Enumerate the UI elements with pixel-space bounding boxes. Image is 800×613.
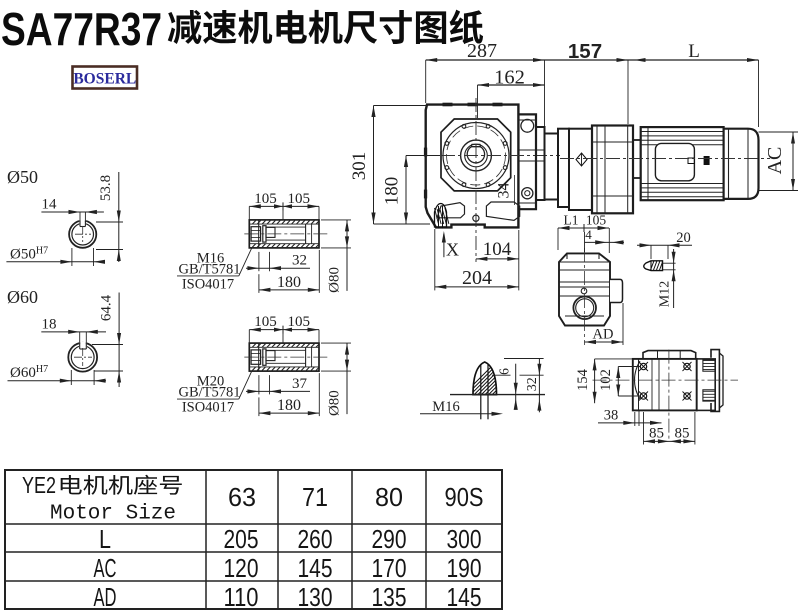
svg-text:14: 14	[42, 197, 58, 213]
svg-text:X: X	[446, 240, 459, 260]
svg-text:GB/T5781: GB/T5781	[178, 385, 240, 401]
svg-text:BOSERL: BOSERL	[73, 71, 136, 88]
svg-text:162: 162	[494, 67, 525, 89]
svg-text:Ø80: Ø80	[327, 390, 343, 416]
svg-text:32: 32	[525, 377, 540, 391]
svg-text:301: 301	[349, 152, 370, 181]
svg-text:L: L	[99, 524, 111, 554]
svg-text:ISO4017: ISO4017	[182, 276, 234, 292]
svg-text:80: 80	[375, 482, 403, 512]
svg-text:290: 290	[372, 524, 407, 554]
svg-text:157: 157	[568, 40, 602, 63]
svg-text:190: 190	[447, 553, 482, 583]
svg-text:105: 105	[288, 314, 311, 330]
svg-text:M16: M16	[432, 399, 459, 415]
svg-text:205: 205	[224, 524, 259, 554]
svg-text:M12: M12	[658, 281, 673, 307]
svg-text:SA77R37: SA77R37	[1, 3, 162, 55]
svg-text:90S: 90S	[445, 482, 484, 512]
svg-text:AC: AC	[764, 147, 786, 175]
svg-text:71: 71	[302, 482, 328, 512]
svg-text:ISO4017: ISO4017	[182, 400, 234, 416]
svg-text:GB/T5781: GB/T5781	[178, 261, 240, 277]
svg-text:38: 38	[604, 408, 619, 424]
svg-text:AD: AD	[94, 582, 117, 612]
svg-text:Ø50: Ø50	[7, 167, 38, 187]
svg-text:37: 37	[292, 376, 308, 392]
svg-text:204: 204	[462, 267, 492, 289]
svg-text:120: 120	[224, 553, 259, 583]
svg-text:110: 110	[224, 582, 259, 612]
svg-text:6: 6	[497, 368, 512, 375]
svg-text:Ø80: Ø80	[327, 267, 343, 293]
svg-text:85: 85	[675, 426, 690, 442]
svg-text:32: 32	[292, 253, 307, 269]
svg-text:104: 104	[483, 239, 512, 260]
svg-text:105: 105	[586, 213, 607, 228]
svg-text:53.8: 53.8	[98, 175, 114, 201]
svg-text:180: 180	[382, 177, 403, 206]
svg-text:180: 180	[277, 397, 301, 414]
svg-text:300: 300	[447, 524, 482, 554]
svg-text:105: 105	[254, 191, 277, 207]
svg-text:18: 18	[42, 317, 57, 333]
svg-text:260: 260	[298, 524, 333, 554]
svg-text:L1: L1	[564, 213, 579, 228]
svg-text:AD: AD	[593, 327, 614, 343]
svg-text:145: 145	[447, 582, 482, 612]
svg-text:34: 34	[496, 183, 513, 199]
svg-text:Ø60: Ø60	[7, 287, 38, 307]
svg-text:Motor Size: Motor Size	[50, 503, 176, 526]
svg-text:AC: AC	[94, 553, 117, 583]
svg-text:105: 105	[254, 314, 277, 330]
svg-text:105: 105	[288, 191, 311, 207]
svg-text:130: 130	[298, 582, 333, 612]
svg-text:145: 145	[298, 553, 333, 583]
svg-text:135: 135	[372, 582, 407, 612]
svg-text:64.4: 64.4	[99, 294, 115, 321]
svg-text:63: 63	[228, 482, 256, 512]
svg-text:L: L	[688, 41, 700, 62]
svg-text:154: 154	[575, 368, 591, 391]
svg-text:4: 4	[585, 227, 592, 242]
svg-text:YE2: YE2	[22, 472, 56, 498]
svg-text:85: 85	[649, 426, 664, 442]
svg-text:180: 180	[277, 274, 301, 291]
svg-text:20: 20	[676, 230, 691, 246]
svg-text:170: 170	[372, 553, 407, 583]
svg-text:287: 287	[467, 40, 497, 62]
svg-text:102: 102	[598, 369, 614, 391]
